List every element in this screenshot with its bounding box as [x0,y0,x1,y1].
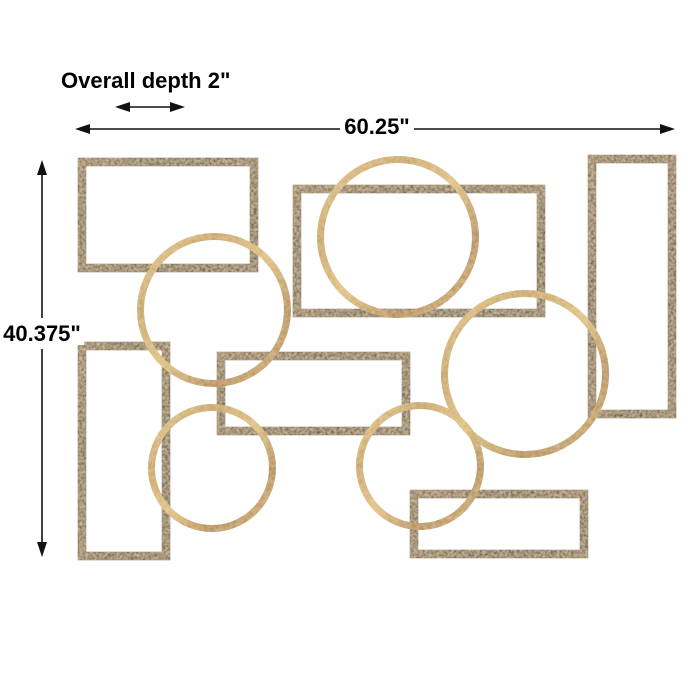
depth-dimension-arrow [115,102,185,112]
height-dimension-line [37,160,47,557]
wall-art-graphic [0,0,700,700]
gold-circle-upper-left [141,237,288,384]
gold-circles [141,160,606,529]
bronze-rectangles [82,159,672,556]
width-dimension-label: 60.25" [341,115,412,138]
gold-circle-top-center [321,160,476,315]
product-dimension-diagram: Overall depth 2" 60.25" 40.375" [0,0,700,700]
gold-circle-bottom-center [360,406,481,527]
depth-dimension-label: Overall depth 2" [58,69,233,92]
height-dimension-label: 40.375" [0,322,84,345]
